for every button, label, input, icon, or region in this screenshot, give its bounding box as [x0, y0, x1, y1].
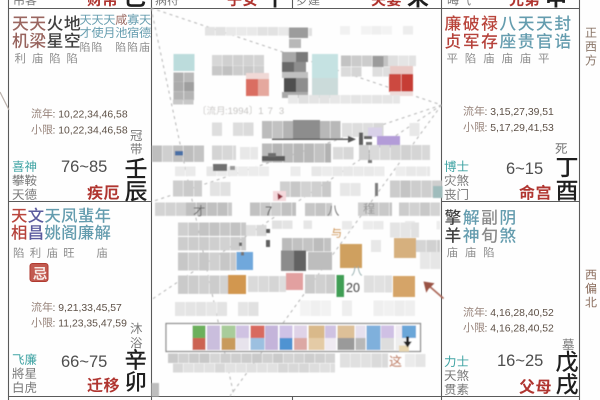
svg-text:: 5,17,29,41,53: : 5,17,29,41,53: [485, 123, 555, 134]
svg-text:: 3,15,27,39,51: : 3,15,27,39,51: [485, 107, 555, 118]
svg-text:: 10,22,34,46,58: : 10,22,34,46,58: [53, 110, 128, 121]
svg-text:: 11,23,35,47,59: : 11,23,35,47,59: [53, 319, 128, 330]
svg-text:66~75: 66~75: [61, 353, 107, 371]
svg-text:: 4,16,28,40,52: : 4,16,28,40,52: [485, 324, 555, 335]
svg-text:: 9,21,33,45,57: : 9,21,33,45,57: [53, 303, 123, 314]
svg-text:76~85: 76~85: [61, 158, 107, 176]
svg-text:6~15: 6~15: [506, 160, 543, 178]
svg-text:: 10,22,34,46,58: : 10,22,34,46,58: [53, 126, 128, 137]
svg-text:20: 20: [346, 281, 360, 295]
svg-text:16~25: 16~25: [497, 352, 543, 370]
svg-text:: 4,16,28,40,52: : 4,16,28,40,52: [485, 308, 555, 319]
svg-text:7: 7: [265, 204, 272, 219]
